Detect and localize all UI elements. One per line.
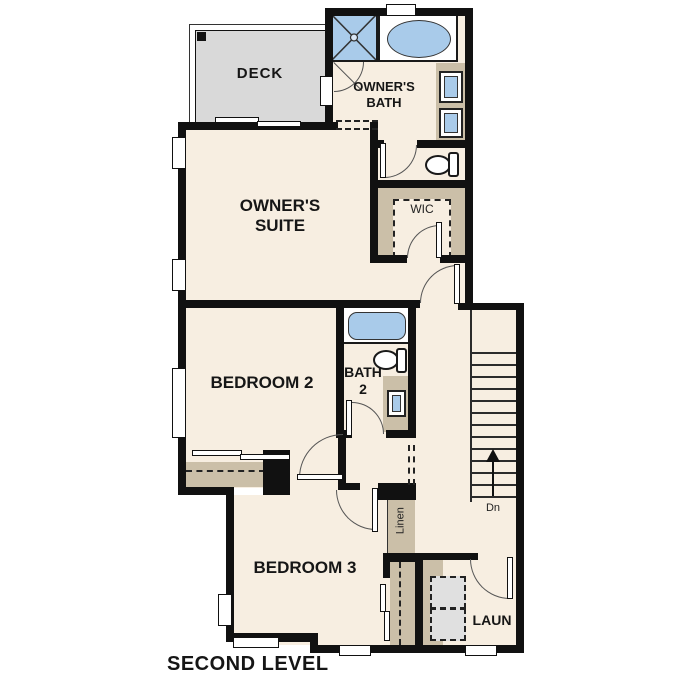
window [233, 637, 279, 648]
door-leaf [454, 264, 460, 304]
stairs-down-label: Dn [478, 502, 508, 515]
wall-segment [440, 255, 473, 263]
deck-label: DECK [195, 65, 325, 83]
toilet-tank-icon [396, 348, 407, 373]
stair-tread [472, 352, 516, 354]
wall-segment [370, 255, 407, 263]
wall-segment [415, 553, 478, 560]
door-leaf [372, 488, 378, 532]
door-leaf [380, 143, 386, 178]
wall-segment [370, 122, 378, 263]
laundry-label: LAUN [466, 612, 518, 629]
owners-bath-label: OWNER'S BATH [336, 79, 432, 110]
stair-direction-arrow [492, 460, 494, 496]
bathtub2-icon [342, 306, 410, 344]
stair-tread [472, 412, 516, 414]
closet-bypass-door [380, 584, 386, 612]
stair-tread [472, 472, 516, 474]
bedroom3-closet-shelf-line [399, 562, 401, 645]
suite-bath-opening [336, 120, 378, 122]
stair-tread [472, 436, 516, 438]
level-title: SECOND LEVEL [167, 652, 367, 676]
wall-segment [178, 122, 186, 495]
stair-tread [472, 388, 516, 390]
stair-tread [472, 400, 516, 402]
wall-segment [458, 303, 524, 310]
sink-icon [439, 108, 463, 138]
hall-mid-floor [416, 303, 465, 433]
bedroom2-label: BEDROOM 2 [192, 373, 332, 393]
closet-bypass-door [384, 611, 390, 641]
door-leaf [297, 474, 343, 480]
wall-segment [465, 8, 473, 310]
stair-tread [472, 496, 516, 498]
owners-suite-label: OWNER'S SUITE [200, 196, 360, 237]
window [172, 368, 186, 438]
sliding-door [257, 121, 301, 127]
window [386, 4, 416, 16]
wall-segment [516, 303, 524, 653]
window [172, 137, 186, 169]
closet-bypass-door [192, 450, 242, 456]
wall-segment [383, 556, 390, 578]
stair-tread [472, 364, 516, 366]
window [465, 645, 497, 656]
closet-bypass-door [240, 454, 290, 460]
stair-tread [472, 424, 516, 426]
bath2-label: BATH 2 [340, 364, 386, 398]
bedroom2-closet [186, 462, 263, 487]
wall-segment [417, 140, 465, 148]
bedroom3-label: BEDROOM 3 [235, 558, 375, 578]
stair-tread [472, 484, 516, 486]
hall-stair-opening [408, 445, 410, 485]
floor-plan: DECK OWNER'S BATH OWNER'S SUITE WIC BEDR… [0, 0, 687, 687]
washer-icon [430, 576, 466, 609]
window [218, 594, 232, 626]
linen-label: Linen [394, 507, 407, 535]
wall-segment [408, 308, 416, 438]
sink-icon [387, 390, 406, 417]
stair-tread [472, 376, 516, 378]
wall-segment [370, 180, 465, 188]
dryer-icon [430, 608, 466, 641]
suite-bath-opening [336, 128, 378, 130]
wall-segment [378, 483, 416, 500]
hall-stair-opening [413, 445, 415, 485]
bathtub-icon [378, 14, 458, 62]
toilet-tank-icon [448, 152, 459, 177]
door-leaf [436, 222, 442, 258]
wall-segment [415, 553, 423, 653]
deck-corner-post [197, 32, 206, 41]
shower-icon [330, 13, 378, 62]
sliding-door [215, 117, 259, 123]
wall-segment [338, 483, 360, 490]
bedroom3-closet-strip [390, 562, 415, 645]
bedroom2-closet-shelf-line [186, 470, 265, 472]
wall-segment [178, 300, 420, 308]
door-leaf [346, 400, 352, 436]
sink-icon [439, 71, 463, 103]
wall-segment [325, 8, 333, 130]
wic-label: WIC [393, 202, 451, 216]
stair-arrow-head-icon [486, 449, 500, 462]
wall-segment [386, 430, 416, 438]
window [172, 259, 186, 291]
door-leaf [507, 557, 513, 599]
